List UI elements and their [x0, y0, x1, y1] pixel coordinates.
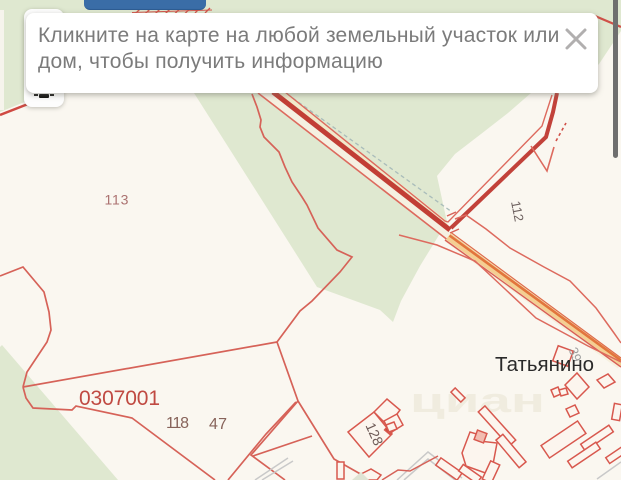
svg-text:118: 118: [166, 415, 189, 432]
svg-text:Татьянино: Татьянино: [495, 354, 594, 376]
svg-text:47: 47: [209, 416, 227, 433]
svg-text:0307001: 0307001: [79, 387, 160, 410]
svg-text:113: 113: [105, 192, 130, 208]
svg-text:циан: циан: [410, 382, 545, 420]
